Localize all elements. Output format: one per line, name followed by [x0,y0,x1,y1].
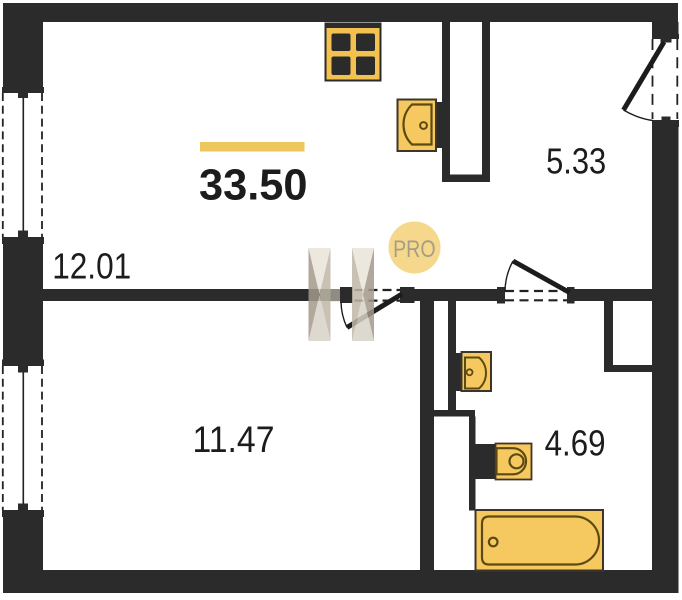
svg-text:4.69: 4.69 [545,422,606,463]
svg-text:PRO: PRO [393,236,436,263]
svg-text:5.33: 5.33 [546,140,606,181]
svg-text:12.01: 12.01 [52,246,131,286]
svg-text:11.47: 11.47 [193,418,275,460]
svg-text:33.50: 33.50 [199,161,308,209]
